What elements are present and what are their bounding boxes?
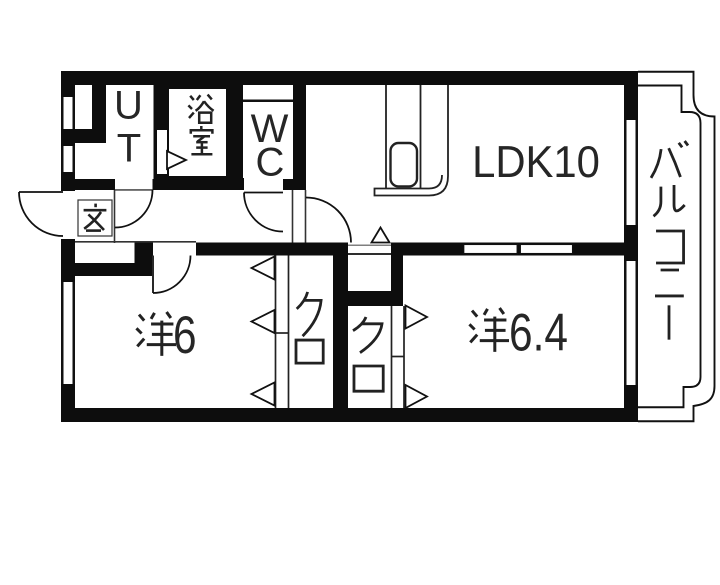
svg-text:6.4: 6.4 <box>509 304 568 363</box>
svg-text:U: U <box>114 84 143 128</box>
svg-text:T: T <box>117 127 141 171</box>
svg-text:6: 6 <box>173 307 197 366</box>
svg-text:C: C <box>256 141 285 185</box>
svg-text:LDK10: LDK10 <box>472 138 600 187</box>
